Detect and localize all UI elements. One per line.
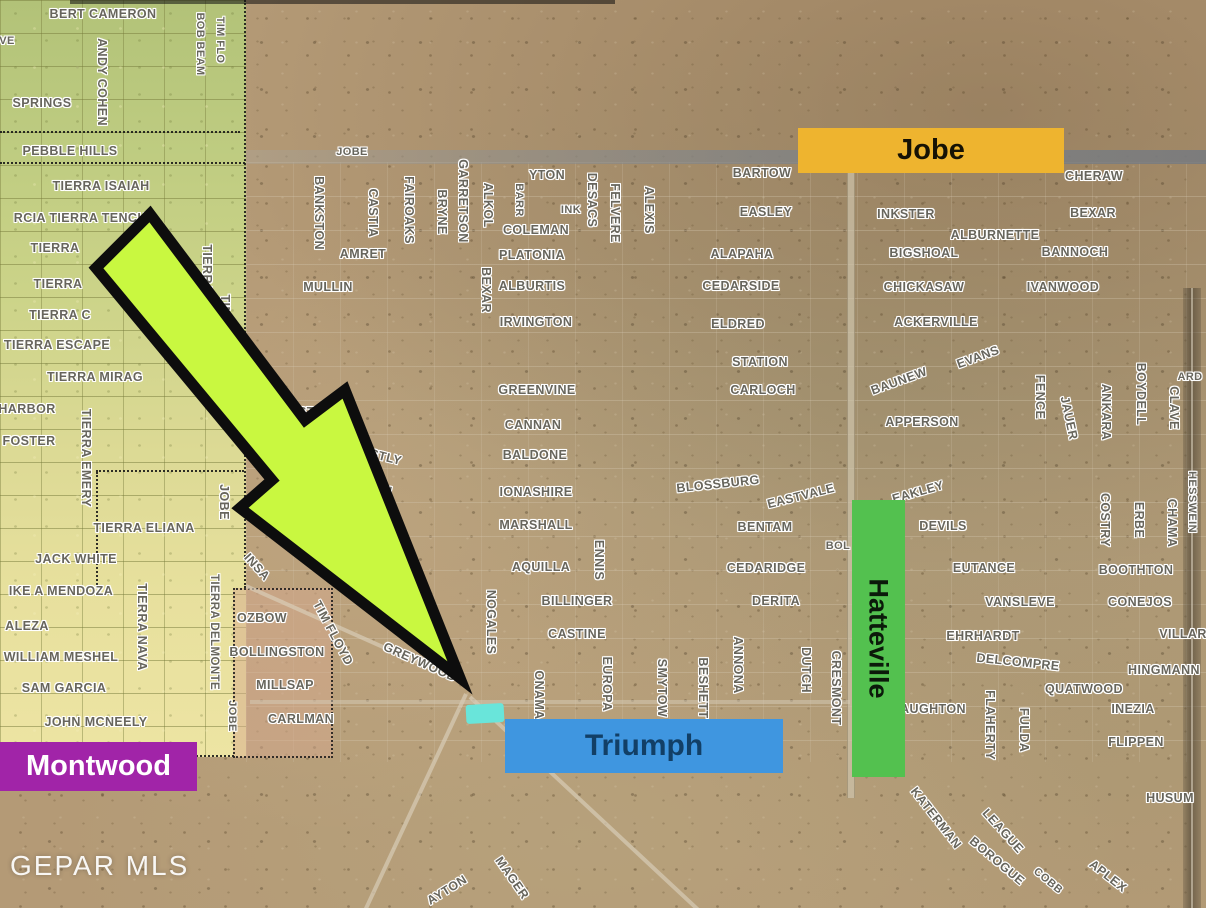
street-label: BOYDELL	[1134, 363, 1148, 426]
street-label: TIERRA DELMONTE	[208, 574, 220, 690]
street-label: BENTAM	[738, 520, 793, 534]
street-label: ANKARA	[1099, 384, 1113, 441]
street-label: TIERRA NAVA	[135, 583, 149, 671]
street-label: CASTIA	[366, 189, 380, 238]
street-label: DUTCH	[799, 647, 813, 693]
street-label: JOHN MCNEELY	[45, 715, 148, 729]
street-label: QUATWOOD	[1045, 682, 1123, 696]
street-label: ERBE	[1132, 502, 1146, 538]
street-label: FOSTER	[2, 434, 55, 448]
street-label: DESACS	[585, 173, 599, 228]
street-label: AMRET	[340, 247, 386, 261]
jobe-road-banner: Jobe	[798, 128, 1064, 173]
street-label: BANNOCH	[1042, 245, 1109, 259]
street-label: ALBURTIS	[499, 279, 565, 293]
street-label: VANSLEVE	[985, 595, 1055, 609]
street-label: ANDY COHEN	[95, 38, 109, 126]
street-label: BESHETT	[696, 657, 710, 718]
street-label: CHAMA	[1165, 499, 1179, 548]
triumph-road-banner: Triumph	[505, 719, 783, 773]
street-label: MULLIN	[303, 280, 353, 294]
street-label: ONAMA	[532, 670, 546, 719]
street-label: IRVINGTON	[500, 315, 573, 329]
street-label: ENNIS	[592, 540, 606, 580]
street-label: HUSUM	[1146, 791, 1194, 805]
street-label: BOLLINGSTON	[229, 645, 324, 659]
top-edge-line	[70, 0, 615, 4]
street-label: BEXAR	[1070, 206, 1116, 220]
street-label: INK	[561, 204, 581, 216]
street-label: ALKOL	[481, 182, 495, 227]
street-label: SAM GARCIA	[22, 681, 107, 695]
street-label: EUROPA	[600, 657, 614, 712]
street-label: BARR	[513, 183, 525, 216]
street-label: JOBE	[226, 700, 238, 732]
street-label: EHRHARDT	[946, 629, 1019, 643]
street-label: BILLINGER	[542, 594, 613, 608]
street-label: BARTOW	[733, 166, 791, 180]
street-label: CARLOCH	[730, 383, 795, 397]
street-label: ARD	[1177, 371, 1202, 383]
street-label: JOBE	[336, 146, 368, 158]
street-label: AQUILLA	[512, 560, 570, 574]
street-label: CLAVE	[1167, 386, 1181, 429]
street-label: BEXAR	[479, 267, 493, 313]
street-label: IVANWOOD	[1027, 280, 1099, 294]
street-label: DERITA	[752, 594, 800, 608]
hatteville-road-banner: Hatteville	[852, 500, 905, 777]
street-label: TIERRA OASIS	[200, 244, 214, 337]
street-label: TIERRA ESCAPE	[4, 338, 110, 352]
gepar-mls-watermark: GEPAR MLS	[10, 850, 189, 882]
street-label: VE	[0, 35, 15, 47]
street-label: ALEXIS	[642, 186, 656, 234]
street-label: BOOTHTON	[1099, 563, 1174, 577]
street-label: ANNISTON	[266, 405, 334, 419]
street-label: ACKERVILLE	[894, 315, 978, 329]
street-label: ALBURNETTE	[951, 228, 1040, 242]
street-label: ELDRED	[711, 317, 765, 331]
jobe-banner-label: Jobe	[897, 134, 965, 167]
street-label: STATION	[732, 355, 788, 369]
street-label: RCIA TIERRA TENCHA	[14, 211, 156, 225]
highlighted-lot	[466, 703, 505, 724]
street-label: FLIPPEN	[1108, 735, 1164, 749]
street-label: IONASHIRE	[499, 485, 572, 499]
street-label: FAIROAKS	[402, 176, 416, 244]
street-label: FENCE	[1033, 375, 1047, 419]
street-label: TIERRA	[31, 241, 80, 255]
street-label: JOBE	[217, 484, 231, 520]
street-label: ALEZA	[5, 619, 49, 633]
street-label: NOGALES	[484, 590, 498, 655]
street-label: BRYNE	[435, 189, 449, 234]
hatteville-banner-label: Hatteville	[863, 578, 894, 698]
map-canvas: BERT CAMERONVEANDY COHENBOB BEAMTIM FLOS…	[0, 0, 1206, 908]
street-label: ANNONA	[731, 636, 745, 693]
street-label: MILLSAP	[256, 678, 314, 692]
boundary-dotted-line	[0, 162, 245, 164]
street-label: APPERSON	[885, 415, 958, 429]
street-label: EUTANCE	[953, 561, 1015, 575]
street-label: IKE A MENDOZA	[9, 584, 113, 598]
street-label: EASLEY	[740, 205, 792, 219]
street-label: EN	[140, 243, 156, 255]
street-label: TIM FLOYD	[218, 295, 232, 366]
street-label: BIGSHOAL	[889, 246, 958, 260]
street-label: CARLMAN	[268, 712, 334, 726]
street-label: VILLAR	[1159, 627, 1206, 641]
street-label: FELVERE	[608, 183, 622, 243]
street-label: GREENVINE	[498, 383, 575, 397]
street-label: GARRETSON	[456, 159, 470, 242]
montwood-banner-label: Montwood	[26, 750, 171, 783]
street-label: SPRINGS	[12, 96, 71, 110]
street-label: INEZIA	[1111, 702, 1154, 716]
street-label: COLEMAN	[503, 223, 569, 237]
street-label: COSTRY	[1098, 493, 1112, 547]
street-label: FLAHERTY	[983, 690, 997, 760]
street-label: PEBBLE HILLS	[22, 144, 117, 158]
street-label: TIERRA EMERY	[79, 409, 93, 507]
street-label: BOB BEAM	[194, 12, 206, 75]
street-label: TIERRA C	[29, 308, 91, 322]
street-label: SMYTOW	[655, 659, 669, 717]
montwood-road-banner: Montwood	[0, 742, 197, 791]
boundary-dotted-line	[96, 470, 244, 472]
street-label: BANKSTON	[312, 176, 326, 250]
street-label: CHERAW	[1065, 169, 1123, 183]
boundary-dotted-line	[244, 0, 246, 588]
street-label: HESSWEIN	[1186, 471, 1198, 533]
street-label: TIERRA MIRAG	[47, 370, 143, 384]
street-label: PLATONIA	[499, 248, 565, 262]
street-label: BOL	[826, 540, 850, 552]
street-label: CANNAN	[505, 418, 562, 432]
street-label: TIM FLO	[214, 17, 226, 64]
street-label: CRESMONT	[829, 651, 843, 726]
street-label: CEDARIDGE	[727, 561, 806, 575]
street-label: CEDARSIDE	[702, 279, 779, 293]
street-label: CASTINE	[548, 627, 606, 641]
street-label: BERT CAMERON	[50, 7, 157, 21]
street-label: BALDONE	[503, 448, 568, 462]
street-label: ALAPAHA	[711, 247, 774, 261]
street-label: CHICKASAW	[884, 280, 965, 294]
street-label: YTON	[529, 168, 565, 182]
street-label: HARBOR	[0, 402, 56, 416]
street-label: JACK WHITE	[35, 552, 117, 566]
street-label: CONEJOS	[1108, 595, 1172, 609]
street-label: WILLIAM MESHEL	[4, 650, 119, 664]
street-label: OZBOW	[237, 611, 287, 625]
street-label: MARSHALL	[499, 518, 572, 532]
street-label: HINGMANN	[1128, 663, 1200, 677]
street-label: TIERRA ISAIAH	[52, 179, 149, 193]
boundary-dotted-line	[0, 131, 240, 133]
street-label: TIERRA ELIANA	[93, 521, 194, 535]
triumph-banner-label: Triumph	[585, 729, 703, 763]
street-label: DEVILS	[919, 519, 967, 533]
street-label: TIERRA	[34, 277, 83, 291]
street-label: FULDA	[1017, 708, 1031, 752]
triumph-road	[250, 700, 850, 704]
street-label: INKSTER	[877, 207, 935, 221]
street-label: AUGHTON	[900, 702, 966, 716]
